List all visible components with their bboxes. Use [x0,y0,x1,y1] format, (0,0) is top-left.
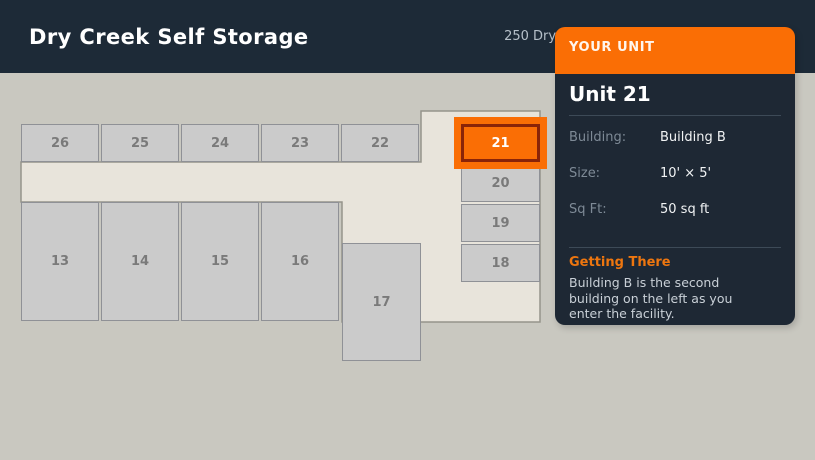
app-title: Dry Creek Self Storage [29,25,309,49]
unit-cell-26[interactable]: 26 [21,124,99,162]
detail-value: Building B [660,130,781,145]
divider [569,247,781,248]
panel-header-label: YOUR UNIT [569,40,655,55]
detail-value: 10' × 5' [660,166,781,181]
unit-cell-18[interactable]: 18 [461,244,540,282]
unit-cell-19[interactable]: 19 [461,204,540,242]
detail-label: Sq Ft: [569,202,660,217]
panel-header: YOUR UNIT [555,27,795,74]
getting-there-text: Building B is the second building on the… [569,275,745,322]
unit-cell-24[interactable]: 24 [181,124,259,162]
unit-cell-22[interactable]: 22 [341,124,419,162]
detail-row-sqft: Sq Ft: 50 sq ft [569,202,781,217]
unit-cell-14[interactable]: 14 [101,202,179,321]
unit-cell-13[interactable]: 13 [21,202,99,321]
unit-cell-17[interactable]: 17 [342,243,421,361]
unit-cell-16[interactable]: 16 [261,202,339,321]
getting-there-title: Getting There [569,255,781,270]
detail-label: Size: [569,166,660,181]
divider [569,115,781,116]
detail-row-size: Size: 10' × 5' [569,166,781,181]
detail-label: Building: [569,130,660,145]
unit-cell-25[interactable]: 25 [101,124,179,162]
unit-cell-15[interactable]: 15 [181,202,259,321]
your-unit-panel: YOUR UNIT Unit 21 Building: Building B S… [555,27,795,325]
detail-row-building: Building: Building B [569,130,781,145]
unit-cell-21-selected[interactable]: 21 [461,124,540,162]
unit-cell-20[interactable]: 20 [461,164,540,202]
unit-cell-23[interactable]: 23 [261,124,339,162]
detail-value: 50 sq ft [660,202,781,217]
unit-title: Unit 21 [569,82,781,106]
panel-body: Unit 21 Building: Building B Size: 10' ×… [555,74,795,325]
